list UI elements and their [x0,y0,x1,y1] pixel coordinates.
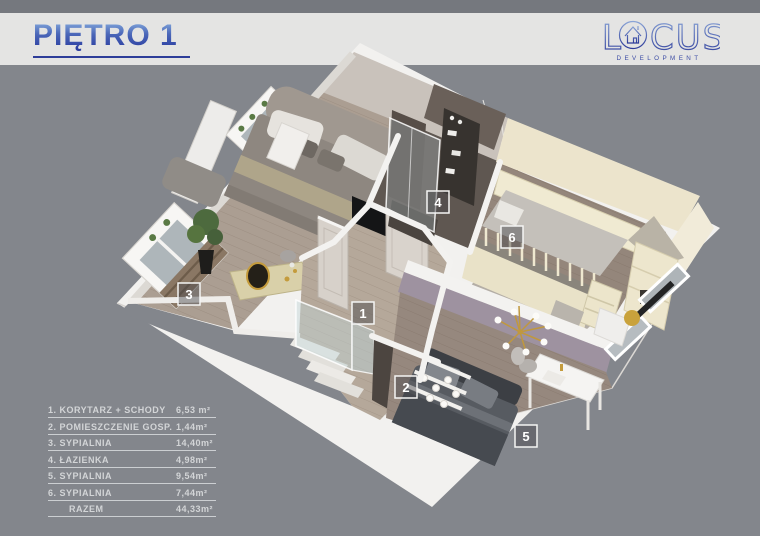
svg-text:6: 6 [508,230,515,245]
legend-row: 1. KORYTARZ + SCHODY 6,53 m² [48,404,216,418]
legend-row: 6. SYPIALNIA 7,44m² [48,487,216,501]
legend-total-label: RAZEM [48,504,104,514]
legend-row: 3. SYPIALNIA 14,40m² [48,437,216,451]
area-legend: 1. KORYTARZ + SCHODY 6,53 m² 2. POMIESZC… [48,404,216,520]
legend-row: 2. POMIESZCZENIE GOSP. 1,44m² [48,421,216,435]
badge-room-6: 6 [501,226,523,248]
svg-text:5: 5 [522,429,529,444]
gold-pouf [624,310,640,326]
legend-area: 1,44m² [176,422,216,432]
badge-room-2: 2 [395,376,417,398]
svg-text:4: 4 [434,195,442,210]
legend-area: 7,44m² [176,488,216,498]
legend-area: 6,53 m² [176,405,216,415]
legend-label: 5. SYPIALNIA [48,471,112,481]
vanity-stool [280,250,296,262]
floorplan-page: PIĘTRO 1 L CUS DEVELOPMENT [0,0,760,536]
badge-room-3: 3 [178,283,200,305]
legend-area: 4,98m² [176,455,216,465]
svg-text:1: 1 [359,306,366,321]
svg-text:2: 2 [402,380,409,395]
legend-label: 1. KORYTARZ + SCHODY [48,405,166,415]
legend-total-area: 44,33m² [176,504,216,514]
legend-area: 9,54m² [176,471,216,481]
legend-total-row: RAZEM 44,33m² [48,503,216,517]
legend-row: 5. SYPIALNIA 9,54m² [48,470,216,484]
badge-room-5: 5 [515,425,537,447]
badge-room-4: 4 [427,191,449,213]
badge-room-1: 1 [352,302,374,324]
legend-area: 14,40m² [176,438,216,448]
legend-label: 3. SYPIALNIA [48,438,112,448]
legend-row: 4. ŁAZIENKA 4,98m² [48,454,216,468]
svg-text:3: 3 [185,287,192,302]
legend-label: 6. SYPIALNIA [48,488,112,498]
legend-label: 2. POMIESZCZENIE GOSP. [48,422,172,432]
legend-label: 4. ŁAZIENKA [48,455,109,465]
